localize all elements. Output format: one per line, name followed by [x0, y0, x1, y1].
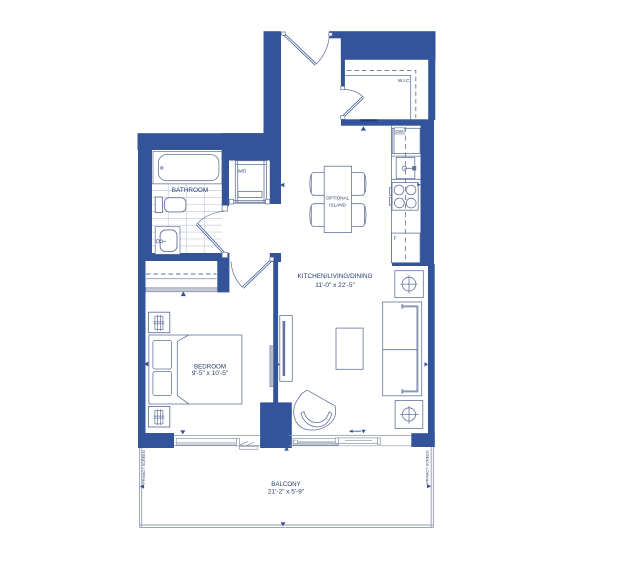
svg-text:11'-0" x 22'-5": 11'-0" x 22'-5" — [315, 282, 355, 289]
svg-text:BALCONY: BALCONY — [271, 481, 301, 488]
svg-text:KITCHEN/LIVING/DINING: KITCHEN/LIVING/DINING — [298, 273, 373, 280]
svg-text:21'-2" x 5'-9": 21'-2" x 5'-9" — [268, 489, 305, 496]
svg-text:W/D: W/D — [238, 168, 247, 173]
svg-text:ISLAND: ISLAND — [329, 203, 346, 208]
svg-text:DW: DW — [395, 129, 403, 134]
svg-text:PRIVACY SCREEN: PRIVACY SCREEN — [142, 450, 146, 483]
svg-text:F: F — [394, 236, 397, 242]
svg-text:W.I.C: W.I.C — [398, 78, 410, 84]
svg-text:OPTIONAL: OPTIONAL — [326, 196, 350, 201]
svg-text:PRIVACY SCREEN: PRIVACY SCREEN — [425, 450, 429, 483]
svg-text:9'-5" x 10'-5": 9'-5" x 10'-5" — [192, 370, 229, 377]
svg-text:BATHROOM: BATHROOM — [172, 187, 208, 194]
